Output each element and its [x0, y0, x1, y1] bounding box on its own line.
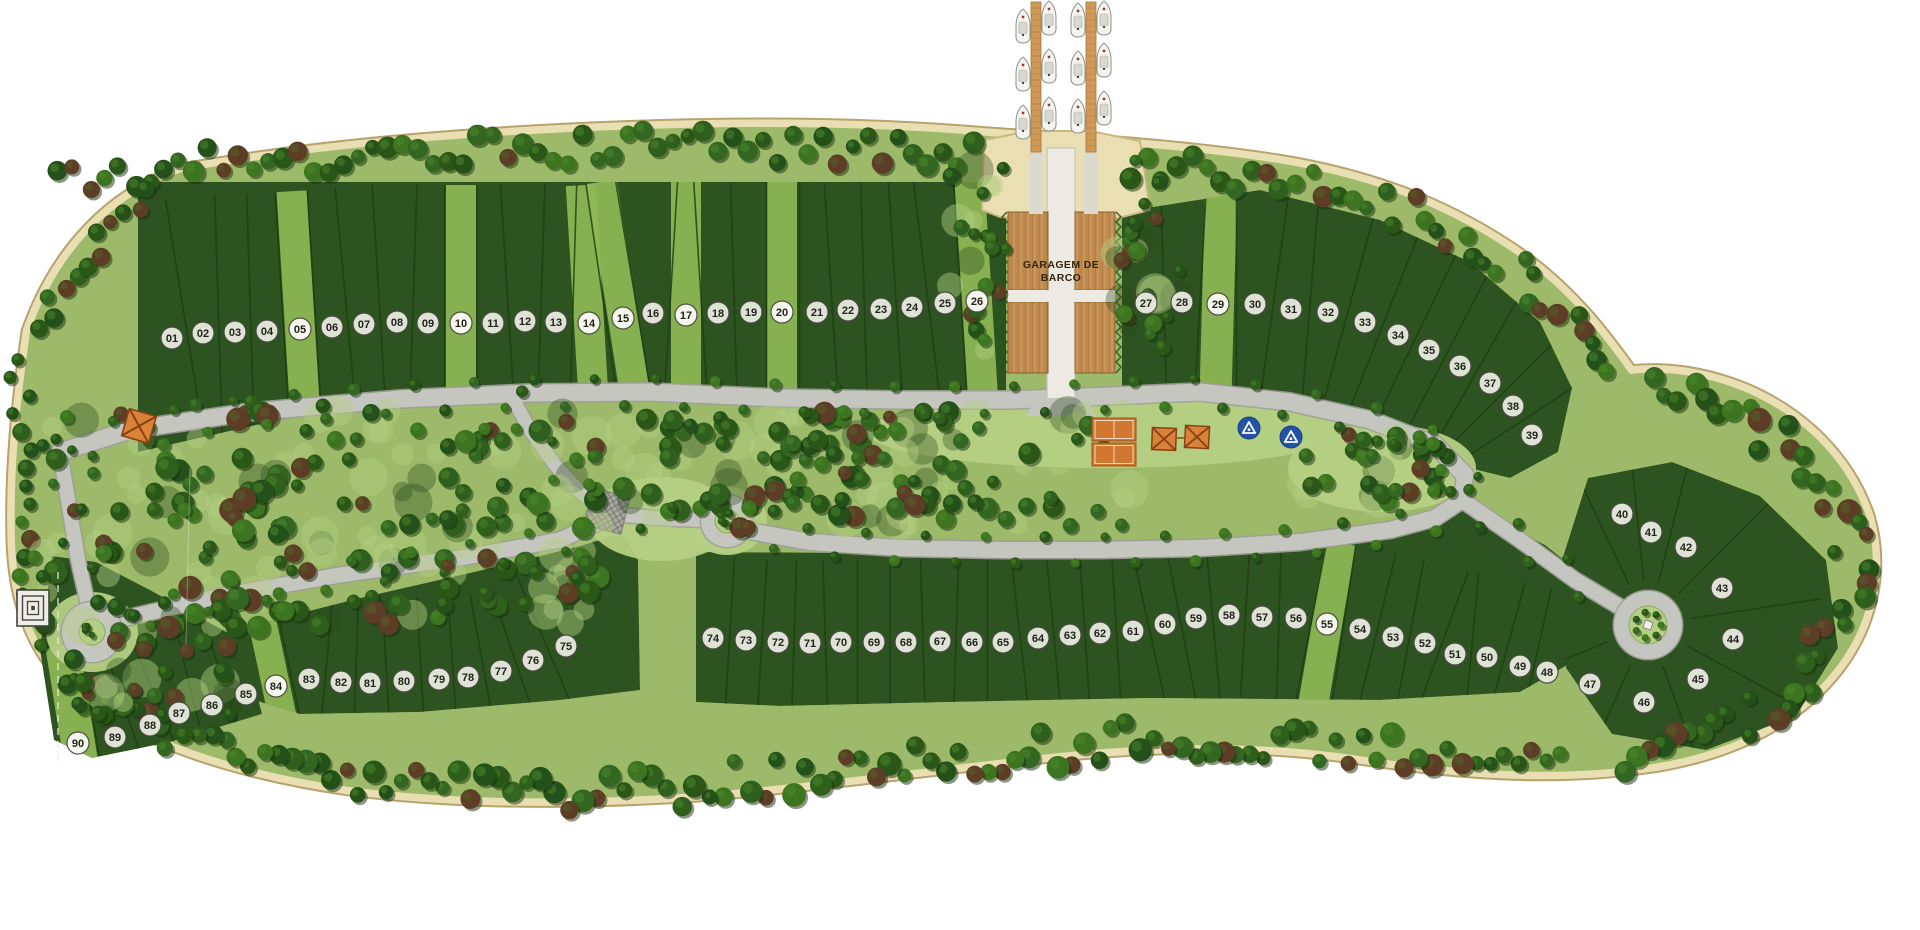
tree-highlight: [322, 166, 330, 174]
tree-highlight: [719, 518, 723, 522]
lot-marker-52[interactable]: 52: [1414, 632, 1436, 654]
tree-highlight: [1132, 558, 1137, 563]
tree-highlight: [1386, 219, 1394, 227]
ground-blotch: [611, 447, 635, 471]
moored-boat: [1042, 1, 1056, 35]
lot-number: 12: [519, 316, 531, 328]
tree-highlight: [47, 311, 56, 320]
tree-highlight: [110, 600, 118, 608]
lot-number: 48: [1541, 667, 1553, 679]
lot-marker-07[interactable]: 07: [353, 313, 375, 335]
lot-marker-19[interactable]: 19: [740, 301, 762, 323]
lot-marker-09[interactable]: 09: [417, 312, 439, 334]
lot-marker-90[interactable]: 90: [67, 732, 89, 754]
tree-highlight: [456, 157, 465, 166]
tree-highlight: [771, 156, 779, 164]
tree-highlight: [830, 157, 839, 166]
tree-highlight: [948, 463, 957, 472]
tree-highlight: [198, 468, 205, 475]
lot-marker-01[interactable]: 01: [161, 327, 183, 349]
lot-marker-55[interactable]: 55: [1316, 613, 1338, 635]
tree-highlight: [1315, 189, 1325, 199]
tree-highlight: [412, 424, 419, 431]
lot-marker-20[interactable]: 20: [771, 301, 793, 323]
tree-highlight: [532, 770, 542, 780]
tree-highlight: [667, 136, 674, 143]
lot-marker-44[interactable]: 44: [1722, 628, 1744, 650]
tree-highlight: [290, 144, 299, 153]
lot-marker-41[interactable]: 41: [1640, 521, 1662, 543]
lot-marker-23[interactable]: 23: [870, 298, 892, 320]
lot-number: 63: [1064, 630, 1076, 642]
tree-highlight: [441, 470, 450, 479]
tree-highlight: [1163, 743, 1169, 749]
lot-marker-77[interactable]: 77: [490, 660, 512, 682]
tree-highlight: [905, 146, 914, 155]
tree-highlight: [234, 450, 243, 459]
tree-highlight: [1358, 730, 1365, 737]
lot-marker-86[interactable]: 86: [201, 694, 223, 716]
park-pavilion-icon-1: [1152, 428, 1177, 451]
park-sign-icon-2: [1280, 426, 1302, 448]
lot-number: 80: [398, 676, 410, 688]
tree-highlight: [432, 612, 439, 619]
tree-highlight: [301, 564, 309, 572]
lot-marker-03[interactable]: 03: [224, 321, 246, 343]
tree-highlight: [840, 751, 847, 758]
tree-highlight: [348, 596, 354, 602]
tree-highlight: [88, 564, 93, 569]
lot-marker-81[interactable]: 81: [359, 672, 381, 694]
lot-number: 39: [1526, 430, 1538, 442]
tree-highlight: [353, 151, 359, 157]
tree-highlight: [317, 400, 324, 407]
tree-highlight: [275, 150, 284, 159]
ground-blotch: [1048, 454, 1069, 475]
lot-marker-65[interactable]: 65: [992, 631, 1014, 653]
tree-highlight: [292, 481, 298, 487]
lot-marker-74[interactable]: 74: [702, 627, 724, 649]
boat-deck: [1100, 104, 1108, 116]
lot-marker-56[interactable]: 56: [1285, 607, 1307, 629]
lot-marker-57[interactable]: 57: [1251, 606, 1273, 628]
tree-highlight: [711, 486, 720, 495]
lot-marker-24[interactable]: 24: [901, 296, 923, 318]
tree-highlight: [920, 409, 925, 414]
tree-highlight: [694, 502, 701, 509]
site-map: GARAGEM DE BARCO: [0, 0, 1920, 930]
labyrinth-structure-icon: [17, 590, 49, 626]
tree-highlight: [1617, 764, 1627, 774]
tree-highlight: [235, 522, 245, 532]
ground-blotch: [42, 417, 62, 437]
lot-marker-37[interactable]: 37: [1479, 372, 1501, 394]
lot-number: 46: [1638, 697, 1650, 709]
tree-highlight: [959, 482, 966, 489]
tree-highlight: [605, 148, 614, 157]
lot-marker-40[interactable]: 40: [1611, 503, 1633, 525]
ground-blotch: [117, 466, 141, 490]
lot-marker-67[interactable]: 67: [929, 630, 951, 652]
lot-marker-14[interactable]: 14: [578, 312, 600, 334]
tree-highlight: [589, 440, 597, 448]
lot-marker-62[interactable]: 62: [1089, 622, 1111, 644]
tree-highlight: [771, 424, 780, 433]
tree-highlight: [1122, 170, 1132, 180]
tree-highlight: [1412, 751, 1420, 759]
lot-marker-75[interactable]: 75: [555, 635, 577, 657]
tree-highlight: [567, 567, 573, 573]
lot-marker-15[interactable]: 15: [612, 307, 634, 329]
tree-highlight: [816, 458, 823, 465]
tree-highlight: [380, 617, 389, 626]
tree-highlight: [129, 179, 138, 188]
lot-number: 50: [1481, 652, 1493, 664]
boat-deck: [1045, 62, 1053, 74]
tree-highlight: [17, 517, 22, 522]
lot-marker-54[interactable]: 54: [1349, 618, 1371, 640]
lot-number: 40: [1616, 509, 1628, 521]
lot-number: 38: [1507, 401, 1519, 413]
tree-highlight: [230, 148, 239, 157]
lot-number: 36: [1454, 361, 1466, 373]
tree-highlight: [580, 583, 590, 593]
lot-number: 35: [1423, 345, 1435, 357]
lot-marker-39[interactable]: 39: [1521, 424, 1543, 446]
lot-number: 60: [1159, 619, 1171, 631]
lot-marker-79[interactable]: 79: [428, 668, 450, 690]
lot-marker-58[interactable]: 58: [1218, 604, 1240, 626]
lot-marker-61[interactable]: 61: [1122, 620, 1144, 642]
lot-marker-49[interactable]: 49: [1509, 655, 1531, 677]
tree-highlight: [743, 783, 753, 793]
tree-highlight: [1647, 370, 1656, 379]
tree-highlight: [1751, 443, 1760, 452]
tree-highlight: [1101, 406, 1105, 410]
lot-number: 70: [835, 637, 847, 649]
moored-boat: [1097, 91, 1111, 125]
lot-marker-04[interactable]: 04: [256, 320, 278, 342]
tree-highlight: [804, 524, 809, 529]
tree-highlight: [759, 453, 765, 459]
tree-highlight: [907, 497, 917, 507]
lot-marker-11[interactable]: 11: [482, 312, 504, 334]
tree-highlight: [111, 159, 119, 167]
lot-marker-34[interactable]: 34: [1387, 324, 1409, 346]
lot-marker-82[interactable]: 82: [330, 671, 352, 693]
tree-highlight: [950, 382, 955, 387]
tree-highlight: [135, 204, 142, 211]
lot-number: 13: [550, 317, 562, 329]
tree-highlight: [1489, 267, 1496, 274]
lot-marker-13[interactable]: 13: [545, 311, 567, 333]
park-sign-disc: [1280, 426, 1302, 448]
lot-marker-17[interactable]: 17: [675, 304, 697, 326]
lot-number: 88: [144, 720, 156, 732]
lot-number: 52: [1419, 638, 1431, 650]
tree-highlight: [410, 764, 417, 771]
tree-highlight: [14, 570, 21, 577]
lot-marker-25[interactable]: 25: [934, 292, 956, 314]
lot-marker-28[interactable]: 28: [1171, 291, 1193, 313]
tree-highlight: [14, 425, 22, 433]
tree-highlight: [1191, 557, 1196, 562]
lot-marker-33[interactable]: 33: [1354, 311, 1376, 333]
tree-highlight: [813, 497, 821, 505]
tree-highlight: [839, 407, 845, 413]
lot-marker-70[interactable]: 70: [830, 631, 852, 653]
tree-highlight: [651, 140, 660, 149]
lot-number: 58: [1223, 610, 1235, 622]
tree-highlight: [112, 505, 120, 513]
tree-highlight: [531, 145, 539, 153]
pier-deck: [1031, 2, 1041, 152]
tree-highlight: [1432, 527, 1437, 532]
lot-marker-02[interactable]: 02: [192, 322, 214, 344]
lot-marker-18[interactable]: 18: [707, 302, 729, 324]
tree-highlight: [1314, 756, 1320, 762]
lot-number: 33: [1359, 317, 1371, 329]
tree-highlight: [138, 643, 145, 650]
lot-marker-38[interactable]: 38: [1502, 395, 1524, 417]
tree-highlight: [90, 226, 98, 234]
tree-highlight: [786, 128, 794, 136]
lot-marker-69[interactable]: 69: [863, 631, 885, 653]
tree-highlight: [441, 569, 445, 573]
tree-highlight: [1436, 466, 1441, 471]
tree-highlight: [680, 403, 684, 407]
lot-marker-84[interactable]: 84: [265, 675, 287, 697]
lot-number: 05: [294, 324, 306, 336]
boat-bow-mark: [1022, 112, 1025, 115]
lot-marker-46[interactable]: 46: [1633, 691, 1655, 713]
tree-highlight: [560, 416, 567, 423]
lot-number: 73: [740, 635, 752, 647]
lot-number: 43: [1716, 583, 1728, 595]
lot-marker-22[interactable]: 22: [837, 299, 859, 321]
tree-highlight: [312, 618, 321, 627]
tree-highlight: [42, 291, 49, 298]
lot-marker-42[interactable]: 42: [1675, 536, 1697, 558]
lot-marker-76[interactable]: 76: [522, 649, 544, 671]
tree-highlight: [986, 242, 993, 249]
tree-highlight: [1840, 502, 1851, 513]
tree-highlight: [181, 579, 192, 590]
lot-marker-87[interactable]: 87: [168, 702, 190, 724]
tree-highlight: [1750, 411, 1761, 422]
tree-highlight: [225, 709, 231, 715]
lot-number: 83: [303, 674, 315, 686]
lot-marker-10[interactable]: 10: [450, 312, 472, 334]
lot-marker-47[interactable]: 47: [1579, 673, 1601, 695]
ground-blotch: [301, 516, 339, 554]
lot-marker-16[interactable]: 16: [642, 302, 664, 324]
tree-highlight: [615, 480, 625, 490]
tree-highlight: [1335, 423, 1340, 428]
tree-highlight: [801, 147, 809, 155]
lot-number: 34: [1392, 330, 1405, 342]
tree-highlight: [1653, 632, 1656, 635]
tree-highlight: [13, 355, 19, 361]
park-sign-disc: [1238, 417, 1260, 439]
tree-highlight: [1081, 418, 1090, 427]
lot-marker-45[interactable]: 45: [1687, 668, 1709, 690]
tree-highlight: [29, 552, 35, 558]
lot-number: 86: [206, 700, 218, 712]
lot-number: 72: [772, 637, 784, 649]
tree-highlight: [1289, 177, 1297, 185]
moored-boat: [1071, 99, 1085, 133]
lot-marker-50[interactable]: 50: [1476, 646, 1498, 668]
tree-highlight: [130, 685, 136, 691]
tree-highlight: [563, 803, 571, 811]
pier-deck: [1086, 2, 1096, 152]
tree-highlight: [457, 433, 467, 443]
lot-marker-29[interactable]: 29: [1207, 293, 1229, 315]
lot-marker-83[interactable]: 83: [298, 668, 320, 690]
lot-marker-06[interactable]: 06: [321, 316, 343, 338]
lot-marker-89[interactable]: 89: [104, 726, 126, 748]
tree-highlight: [936, 145, 944, 153]
tree-highlight: [529, 495, 539, 505]
tree-highlight: [1072, 560, 1076, 564]
tree-highlight: [1076, 735, 1086, 745]
park-pavilion-icon-2: [1184, 425, 1209, 448]
tree-highlight: [515, 136, 525, 146]
lot-marker-53[interactable]: 53: [1382, 626, 1404, 648]
tree-highlight: [969, 496, 976, 503]
lot-marker-43[interactable]: 43: [1711, 577, 1733, 599]
lot-number: 04: [261, 326, 274, 338]
lot-marker-78[interactable]: 78: [457, 666, 479, 688]
tree-highlight: [1460, 229, 1468, 237]
tree-highlight: [981, 410, 985, 414]
tree-highlight: [1667, 725, 1678, 736]
tree-highlight: [1131, 741, 1142, 752]
lot-marker-64[interactable]: 64: [1027, 627, 1049, 649]
tree-highlight: [1430, 225, 1437, 232]
tree-highlight: [138, 545, 145, 552]
lot-marker-71[interactable]: 71: [799, 632, 821, 654]
lot-marker-30[interactable]: 30: [1244, 293, 1266, 315]
lot-number: 90: [72, 738, 84, 750]
tree-highlight: [94, 250, 102, 258]
tree-highlight: [987, 234, 992, 239]
pier-walkway: [1084, 146, 1098, 214]
tree-highlight: [365, 763, 375, 773]
lot-number: 27: [1140, 298, 1152, 310]
tree-highlight: [938, 512, 947, 521]
tree-highlight: [98, 547, 105, 554]
park-sign-dot: [1248, 428, 1251, 431]
lot-marker-48[interactable]: 48: [1536, 661, 1558, 683]
tree-highlight: [1146, 330, 1151, 335]
tree-highlight: [575, 550, 583, 558]
tree-highlight: [922, 532, 926, 536]
lot-marker-05[interactable]: 05: [289, 318, 311, 340]
boat-deck: [1100, 56, 1108, 68]
tree-highlight: [740, 143, 749, 152]
tree-highlight: [476, 766, 486, 776]
tree-highlight: [726, 130, 735, 139]
tree-highlight: [1118, 716, 1126, 724]
lot-number: 29: [1212, 299, 1224, 311]
tree-highlight: [1220, 529, 1225, 534]
tree-highlight: [259, 407, 269, 417]
boat-bow-mark: [1022, 64, 1025, 67]
lot-number: 11: [487, 318, 499, 330]
tree-highlight: [1861, 562, 1870, 571]
lot-marker-85[interactable]: 85: [235, 683, 257, 705]
lot-marker-31[interactable]: 31: [1280, 298, 1302, 320]
tree-highlight: [1273, 728, 1282, 737]
lot-marker-72[interactable]: 72: [767, 631, 789, 653]
lot-marker-36[interactable]: 36: [1449, 355, 1471, 377]
tree-highlight: [229, 589, 240, 600]
lot-marker-08[interactable]: 08: [386, 311, 408, 333]
lot-marker-21[interactable]: 21: [806, 301, 828, 323]
lot-marker-12[interactable]: 12: [514, 310, 536, 332]
tree-highlight: [889, 500, 898, 509]
tree-highlight: [159, 598, 165, 604]
tree-highlight: [879, 453, 885, 459]
tree-highlight: [1440, 240, 1447, 247]
lot-marker-63[interactable]: 63: [1059, 624, 1081, 646]
moored-boat: [1016, 9, 1030, 43]
tree-highlight: [1446, 487, 1451, 492]
tree-highlight: [941, 404, 950, 413]
lot-number: 85: [240, 689, 252, 701]
lot-marker-32[interactable]: 32: [1317, 301, 1339, 323]
tree-highlight: [117, 206, 124, 213]
tree-highlight: [105, 217, 111, 223]
moored-boat: [1016, 105, 1030, 139]
cul-de-sac-east: [1613, 590, 1684, 661]
tree-highlight: [1041, 408, 1046, 413]
tree-highlight: [1305, 479, 1313, 487]
tree-highlight: [18, 551, 26, 559]
lot-marker-26[interactable]: 26: [966, 290, 988, 312]
tree-highlight: [286, 547, 294, 555]
lot-marker-73[interactable]: 73: [735, 629, 757, 651]
tree-highlight: [290, 390, 295, 395]
tree-highlight: [891, 382, 896, 387]
lot-marker-60[interactable]: 60: [1154, 613, 1176, 635]
tree-highlight: [253, 483, 264, 494]
lot-marker-27[interactable]: 27: [1135, 292, 1157, 314]
lot-marker-35[interactable]: 35: [1418, 339, 1440, 361]
tree-highlight: [20, 462, 28, 470]
lot-number: 37: [1484, 378, 1496, 390]
lot-marker-59[interactable]: 59: [1185, 607, 1207, 629]
lot-number: 44: [1727, 634, 1740, 646]
lot-marker-88[interactable]: 88: [139, 714, 161, 736]
tree-highlight: [235, 490, 246, 501]
tree-highlight: [662, 451, 670, 459]
lot-marker-66[interactable]: 66: [961, 631, 983, 653]
tree-highlight: [1332, 189, 1340, 197]
lot-marker-80[interactable]: 80: [393, 670, 415, 692]
tree-highlight: [1642, 610, 1645, 613]
tree-highlight: [1642, 635, 1645, 638]
tree-highlight: [186, 163, 196, 173]
tree-highlight: [1534, 304, 1541, 311]
lot-marker-51[interactable]: 51: [1444, 643, 1466, 665]
tree-highlight: [68, 446, 72, 450]
boat-deck: [1045, 110, 1053, 122]
lot-marker-68[interactable]: 68: [895, 631, 917, 653]
tree-highlight: [1397, 761, 1406, 770]
